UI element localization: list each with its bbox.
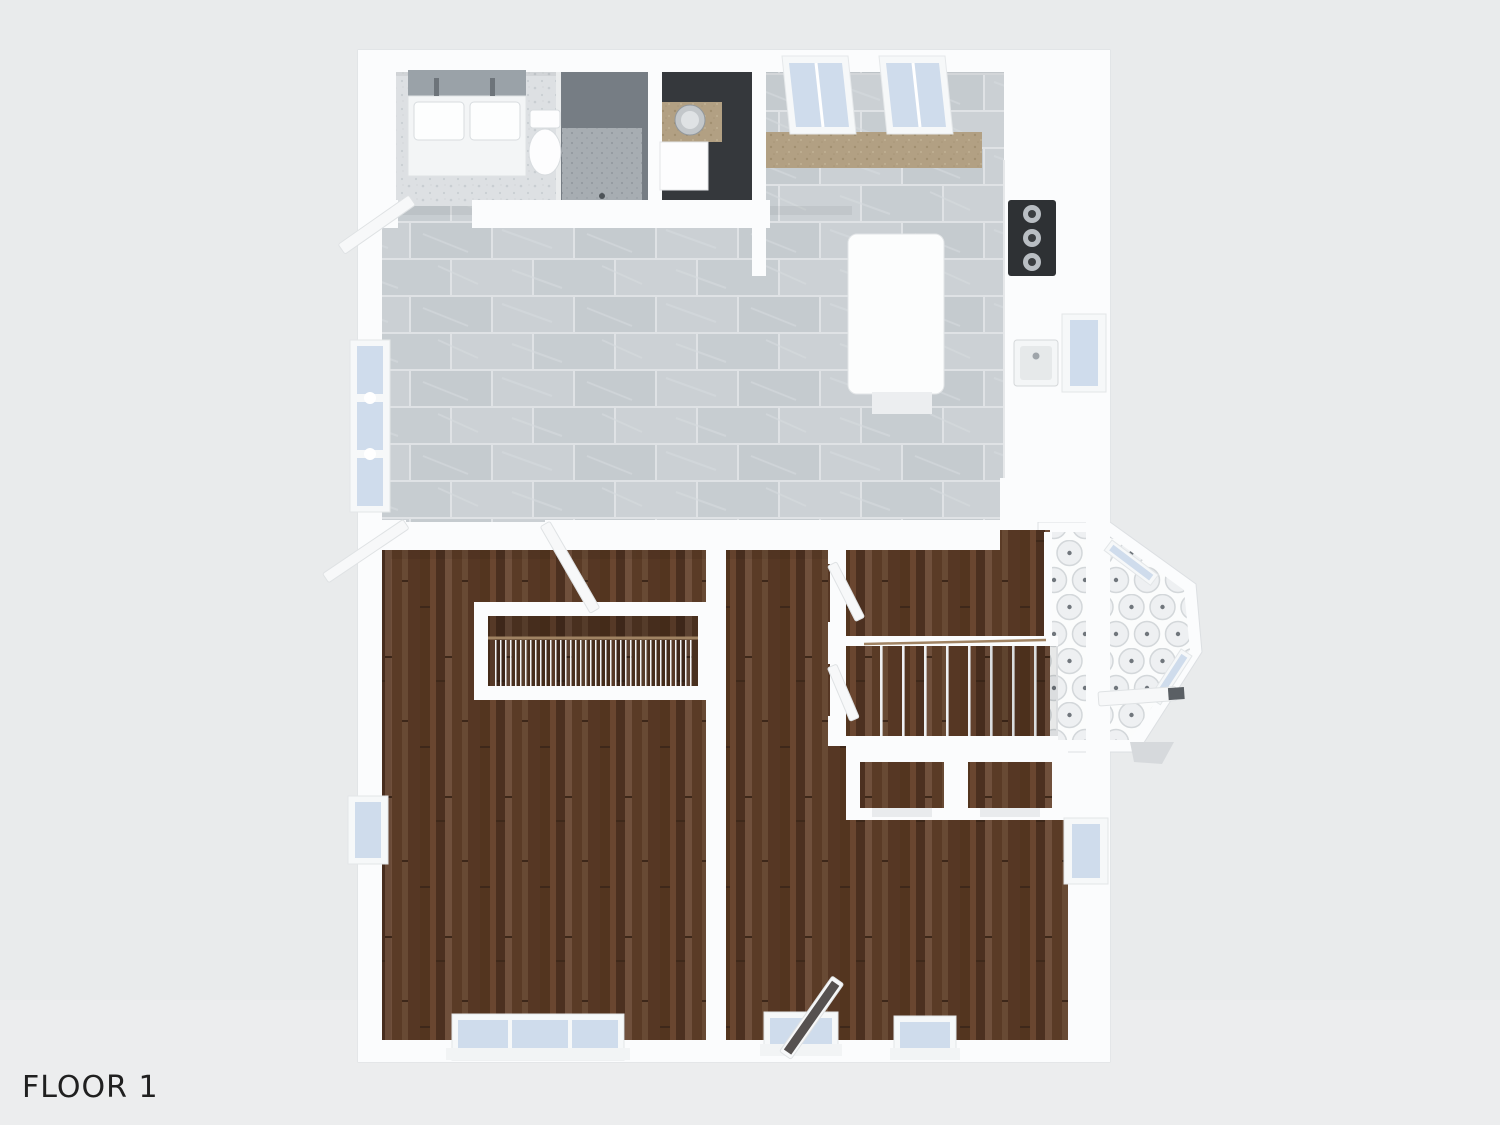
hall-wall-c [828, 716, 846, 746]
floorplan-canvas: FLOOR 1 [0, 0, 1500, 1125]
stair-stringer-bottom [846, 736, 1058, 746]
floor-label: FLOOR 1 [22, 1070, 159, 1105]
kitchen-mat [764, 132, 982, 168]
left-wall-window-stack [350, 340, 390, 512]
toilet-tank [530, 110, 560, 128]
living-window-sill [446, 1048, 630, 1060]
faucet-right [490, 78, 495, 96]
staircase [864, 640, 1058, 736]
washer [660, 142, 708, 190]
faucet-left [434, 78, 439, 96]
hall-wall-a [828, 548, 846, 564]
landing-foyer-wall [1044, 532, 1052, 644]
closet-left-floor [860, 762, 944, 808]
vanity-sink-left [414, 102, 464, 140]
closet-left-sill [872, 808, 932, 817]
closet-right-sill [980, 808, 1040, 817]
hall-wall-b [828, 622, 846, 664]
closets [846, 756, 1068, 820]
mid-wall [545, 520, 1000, 550]
kitchen-faucet [1033, 353, 1040, 360]
front-door-hinge-block [1168, 687, 1185, 700]
kitchen-sink-basin [1020, 346, 1052, 380]
kitchen-top-window-2 [879, 56, 953, 134]
kitchen-top-window-1 [782, 56, 856, 134]
toilet-bowl [529, 129, 561, 175]
stair-opening-railing [474, 602, 712, 700]
kitchen-island [848, 234, 944, 394]
stair-landing-floor [992, 530, 1050, 644]
window-mullion-knob-1 [364, 392, 376, 404]
right-wall-kitchen-window [1062, 314, 1106, 392]
living-triple-window [446, 1014, 630, 1060]
kitchen-se-wall [1000, 478, 1090, 522]
dining-floor [378, 206, 852, 522]
laundry-kitchen-wall [752, 62, 766, 276]
floorplan-render [0, 0, 1500, 1125]
laundry-sink-basin [681, 111, 699, 129]
bathroom-south-wall [472, 200, 770, 228]
closet-right-floor [968, 762, 1052, 808]
kitchen-right-wall-counter-zone [1004, 66, 1088, 522]
hallway-floor [846, 550, 992, 642]
stair-depth-shade [970, 646, 1058, 736]
wall-right [1086, 50, 1110, 1062]
right-wall-family-window [1064, 818, 1108, 884]
shower-drain [599, 193, 605, 199]
railing-balusters [492, 640, 694, 686]
wall-top [358, 50, 1110, 72]
window-mullion-knob-2 [364, 448, 376, 460]
island-base [872, 392, 932, 414]
shower-floor-lower [562, 128, 642, 200]
vanity-sink-right [470, 102, 520, 140]
family-bottom-window-2 [890, 1016, 960, 1060]
left-wall-living-window [348, 796, 388, 864]
